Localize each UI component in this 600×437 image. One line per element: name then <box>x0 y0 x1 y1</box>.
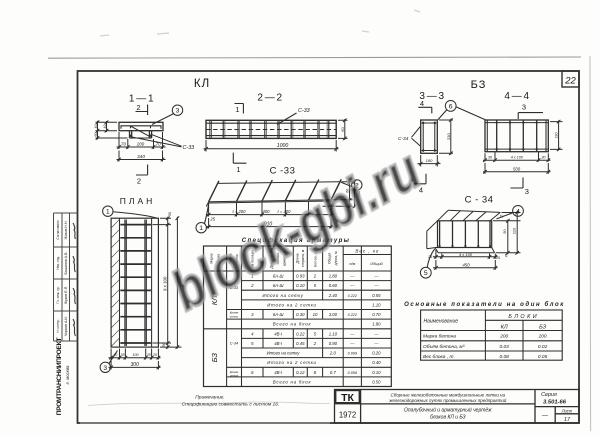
svg-text:300: 300 <box>131 362 140 368</box>
svg-text:БЗ: БЗ <box>471 79 487 91</box>
svg-text:—: — <box>349 331 355 336</box>
svg-text:Спецификацию совместить с л: Спецификацию совместить с листом 16. <box>182 402 280 408</box>
svg-text:50: 50 <box>168 212 172 216</box>
svg-text:Жуков Е.Я.: Жуков Е.Я. <box>64 286 68 305</box>
svg-text:Вес блока , т: Вес блока , т <box>423 354 453 360</box>
svg-text:блоков КЛ и БЗ: блоков КЛ и БЗ <box>430 414 466 420</box>
svg-text:Гл. инж. пр.: Гл. инж. пр. <box>56 286 60 303</box>
svg-text:2 — 2: 2 — 2 <box>257 93 282 104</box>
svg-text:t = 200: t = 200 <box>233 209 247 214</box>
svg-text:0.90: 0.90 <box>329 341 338 346</box>
svg-text:—: — <box>373 331 379 336</box>
svg-text:0.22: 0.22 <box>296 331 305 336</box>
svg-text:200: 200 <box>538 334 547 340</box>
svg-text:25: 25 <box>146 353 151 357</box>
svg-text:10: 10 <box>313 312 318 317</box>
svg-text:180: 180 <box>426 158 433 163</box>
svg-text:200: 200 <box>136 142 145 147</box>
svg-text:0.222: 0.222 <box>348 313 357 317</box>
svg-text:340: 340 <box>137 154 145 160</box>
svg-text:1: 1 <box>106 209 110 216</box>
svg-text:БЗ: БЗ <box>210 353 219 363</box>
svg-text:4 х 100: 4 х 100 <box>459 252 473 257</box>
svg-text:4 х 100: 4 х 100 <box>511 156 524 160</box>
svg-text:0.20: 0.20 <box>372 351 381 356</box>
svg-text:Всего на блок: Всего на блок <box>273 322 312 327</box>
svg-text:Итого на сетку: Итого на сетку <box>267 351 301 356</box>
svg-text:Общий: Общий <box>370 262 383 266</box>
svg-text:—: — <box>349 274 355 279</box>
svg-text:Основные показатели на один: Основные показатели на один блок <box>404 301 565 308</box>
svg-text:4В-I: 4В-I <box>274 370 283 375</box>
svg-text:100: 100 <box>133 353 139 357</box>
svg-text:230: 230 <box>446 132 451 139</box>
svg-text:0.02: 0.02 <box>538 344 548 350</box>
svg-text:1.80: 1.80 <box>329 274 338 279</box>
svg-text:190: 190 <box>555 132 559 138</box>
svg-text:1 — 1: 1 — 1 <box>129 94 154 105</box>
svg-text:—: — <box>542 413 548 419</box>
svg-text:С -33: С -33 <box>270 166 296 177</box>
svg-text:Наименование: Наименование <box>424 319 459 325</box>
svg-text:220: 220 <box>512 227 517 234</box>
svg-text:Итого на 2 сетки: Итого на 2 сетки <box>267 360 316 365</box>
svg-text:0.45: 0.45 <box>296 341 305 346</box>
svg-text:4: 4 <box>420 99 424 108</box>
svg-text:1: 1 <box>199 225 203 232</box>
svg-text:Сборные железобетонные междушп: Сборные железобетонные междушпальные лот… <box>391 392 506 397</box>
svg-text:Марка бетона: Марка бетона <box>423 334 456 340</box>
svg-text:КЛ: КЛ <box>501 324 508 330</box>
svg-text:1972: 1972 <box>339 411 356 420</box>
svg-text:1: 1 <box>235 105 239 114</box>
svg-text:0.12: 0.12 <box>296 370 305 375</box>
svg-text:Объём бетона, м³: Объём бетона, м³ <box>423 344 465 350</box>
svg-text:Серия: Серия <box>541 392 557 398</box>
svg-text:3: 3 <box>522 102 526 111</box>
svg-text:0.50: 0.50 <box>372 379 381 384</box>
svg-text:п/м: п/м <box>349 262 355 266</box>
svg-text:6А-Ш: 6А-Ш <box>273 283 284 288</box>
svg-text:1: 1 <box>236 165 240 174</box>
svg-text:0.93: 0.93 <box>296 274 305 279</box>
svg-text:БЛОКИ: БЛОКИ <box>508 314 539 320</box>
svg-text:Итого на сетку: Итого на сетку <box>262 293 303 298</box>
svg-text:50: 50 <box>162 343 166 347</box>
svg-text:3: 3 <box>525 187 529 196</box>
svg-text:Всего на блок: Всего на блок <box>273 379 312 384</box>
svg-text:сеток: сеток <box>230 374 239 378</box>
svg-text:4В-I: 4В-I <box>274 341 283 346</box>
svg-text:Лист: Лист <box>561 408 573 413</box>
svg-text:4: 4 <box>516 208 520 215</box>
svg-text:0.60: 0.60 <box>329 283 338 288</box>
svg-text:г. москва: г. москва <box>65 365 70 385</box>
svg-text:0.30: 0.30 <box>296 312 305 317</box>
svg-text:3: 3 <box>176 108 180 115</box>
svg-text:Чирков А.И.: Чирков А.И. <box>64 316 68 336</box>
svg-text:25: 25 <box>495 256 501 260</box>
svg-text:КЛ: КЛ <box>194 78 210 90</box>
svg-text:5: 5 <box>424 270 428 277</box>
svg-text:6А-Ш: 6А-Ш <box>273 312 284 317</box>
svg-text:60: 60 <box>340 127 345 132</box>
svg-text:ТК: ТК <box>341 392 354 404</box>
svg-text:0.222: 0.222 <box>348 294 357 298</box>
svg-text:6: 6 <box>449 103 453 110</box>
svg-text:60: 60 <box>94 133 98 137</box>
svg-text:40: 40 <box>103 125 107 129</box>
svg-text:Вес , кг: Вес , кг <box>355 249 379 254</box>
svg-text:0.55: 0.55 <box>372 293 381 298</box>
svg-text:90: 90 <box>503 229 507 233</box>
svg-text:2.0: 2.0 <box>329 351 337 356</box>
svg-text:1.80: 1.80 <box>372 322 381 327</box>
svg-text:0.70: 0.70 <box>372 312 381 317</box>
svg-text:1.10: 1.10 <box>329 331 338 336</box>
svg-text:20: 20 <box>152 353 157 357</box>
svg-text:Н. контр.: Н. контр. <box>56 319 60 332</box>
svg-text:сетки: сетки <box>230 314 239 318</box>
svg-text:—: — <box>349 283 355 288</box>
svg-text:—: — <box>373 283 379 288</box>
svg-text:3.00: 3.00 <box>329 312 338 317</box>
svg-text:500: 500 <box>513 166 521 171</box>
svg-text:25: 25 <box>209 217 215 222</box>
svg-text:—: — <box>349 341 355 346</box>
svg-text:2.40: 2.40 <box>328 293 338 298</box>
svg-text:—: — <box>373 274 379 279</box>
svg-text:4 — 4: 4 — 4 <box>504 91 529 102</box>
svg-text:17: 17 <box>564 417 571 423</box>
svg-text:С-33: С-33 <box>183 145 195 151</box>
svg-text:1000: 1000 <box>277 143 289 149</box>
svg-text:0.05: 0.05 <box>538 354 548 360</box>
svg-text:С-33: С-33 <box>298 108 310 114</box>
svg-text:Нач. отд.: Нач. отд. <box>56 256 60 269</box>
svg-text:0.08: 0.08 <box>500 354 510 360</box>
svg-text:С-34: С-34 <box>230 341 239 346</box>
svg-text:22: 22 <box>564 76 576 87</box>
svg-text:0.7: 0.7 <box>330 370 337 375</box>
svg-text:Согласовано: Согласовано <box>56 220 60 239</box>
svg-text:0.099: 0.099 <box>348 371 357 375</box>
svg-text:Примечание.: Примечание. <box>195 394 225 400</box>
svg-text:Опалубочный и арматурный чертё: Опалубочный и арматурный чертёж <box>404 406 492 413</box>
svg-text:БЗ: БЗ <box>539 324 546 330</box>
svg-text:Общая: Общая <box>328 253 332 264</box>
svg-text:С - 34: С - 34 <box>465 195 494 206</box>
svg-text:0.10: 0.10 <box>296 283 305 288</box>
svg-text:Жохов Н.Н.: Жохов Н.Н. <box>64 220 68 239</box>
svg-text:Итого на 2 сетки: Итого на 2 сетки <box>267 302 316 307</box>
svg-text:0.10: 0.10 <box>372 370 381 375</box>
svg-text:—: — <box>373 341 379 346</box>
svg-text:ПЛАН: ПЛАН <box>120 196 156 206</box>
svg-text:45: 45 <box>505 254 509 258</box>
svg-text:200: 200 <box>499 334 508 340</box>
svg-text:450: 450 <box>462 262 470 267</box>
svg-text:0.099: 0.099 <box>348 352 357 356</box>
svg-text:Башилов А.В.: Башилов А.В. <box>64 251 68 274</box>
svg-text:35: 35 <box>121 353 125 357</box>
svg-text:ПРОМТРАНСНИИПРОЕКТ: ПРОМТРАНСНИИПРОЕКТ <box>56 338 63 416</box>
svg-text:3: 3 <box>103 365 107 372</box>
svg-text:длина, м: длина, м <box>334 251 338 265</box>
svg-text:2: 2 <box>136 103 140 112</box>
svg-text:2: 2 <box>137 177 141 186</box>
svg-text:0.40: 0.40 <box>372 360 381 365</box>
svg-text:4В-I: 4В-I <box>274 331 283 336</box>
svg-text:железнодорожных путях промышле: железнодорожных путях промышленных предп… <box>388 397 507 403</box>
svg-text:0.03: 0.03 <box>500 344 510 350</box>
svg-text:1.10: 1.10 <box>372 302 381 307</box>
svg-text:40: 40 <box>94 125 98 129</box>
svg-text:3.501-66: 3.501-66 <box>543 400 567 406</box>
svg-text:70: 70 <box>121 142 126 147</box>
